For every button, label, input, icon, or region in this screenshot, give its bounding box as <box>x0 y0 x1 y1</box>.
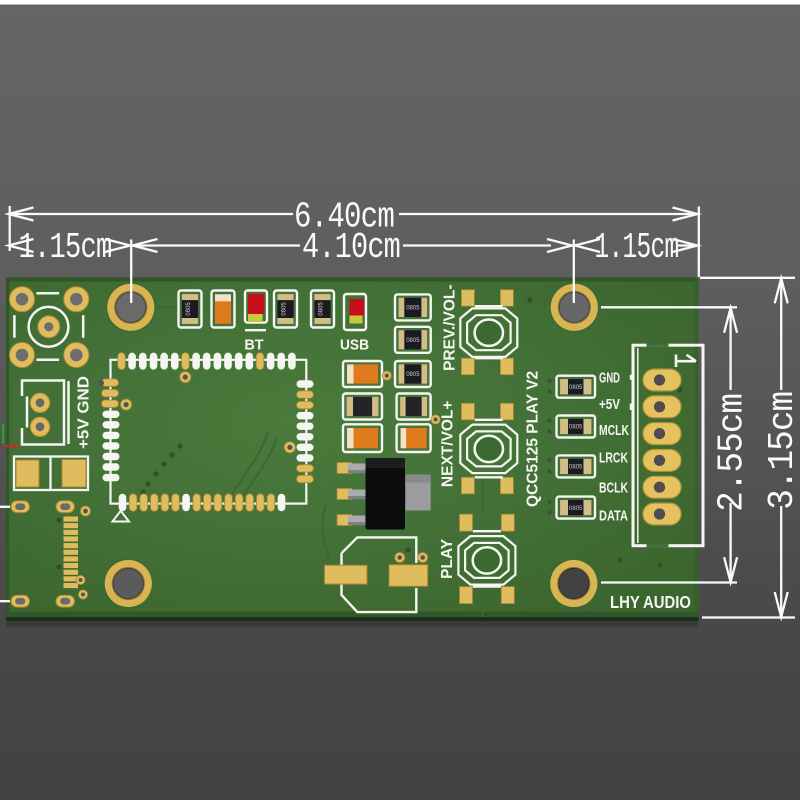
svg-text:0805: 0805 <box>319 302 325 316</box>
svg-text:2.55cm: 2.55cm <box>712 394 753 512</box>
svg-text:BT: BT <box>244 338 263 354</box>
svg-text:QCC5125 PLAY V2: QCC5125 PLAY V2 <box>525 371 542 507</box>
svg-text:0805: 0805 <box>569 465 583 471</box>
svg-text:PREV./VOL-: PREV./VOL- <box>441 284 458 370</box>
svg-text:0805: 0805 <box>186 302 192 316</box>
svg-text:USB: USB <box>340 338 369 354</box>
svg-text:1.15cm: 1.15cm <box>19 227 112 268</box>
svg-text:0805: 0805 <box>406 372 420 378</box>
svg-text:0805: 0805 <box>569 385 583 391</box>
svg-text:0805: 0805 <box>282 302 288 316</box>
svg-text:0805: 0805 <box>569 506 583 512</box>
svg-text:GND: GND <box>599 371 620 387</box>
svg-text:MCLK: MCLK <box>599 423 629 439</box>
svg-text:1.15cm: 1.15cm <box>595 227 679 268</box>
svg-text:0805: 0805 <box>406 306 420 312</box>
svg-text:0805: 0805 <box>569 425 583 431</box>
svg-text:BCLK: BCLK <box>599 481 628 497</box>
svg-text:4.10cm: 4.10cm <box>302 227 400 268</box>
svg-text:3.15cm: 3.15cm <box>762 392 800 510</box>
svg-text:LRCK: LRCK <box>599 451 628 467</box>
svg-text:PLAY: PLAY <box>439 538 456 579</box>
svg-text:0805: 0805 <box>406 338 420 344</box>
svg-text:NEXT/VOL+: NEXT/VOL+ <box>440 401 457 488</box>
svg-text:LHY AUDIO: LHY AUDIO <box>610 592 691 612</box>
svg-text:+5V: +5V <box>599 397 620 413</box>
svg-text:+5V GND: +5V GND <box>76 376 93 449</box>
svg-text:DATA: DATA <box>599 509 628 525</box>
